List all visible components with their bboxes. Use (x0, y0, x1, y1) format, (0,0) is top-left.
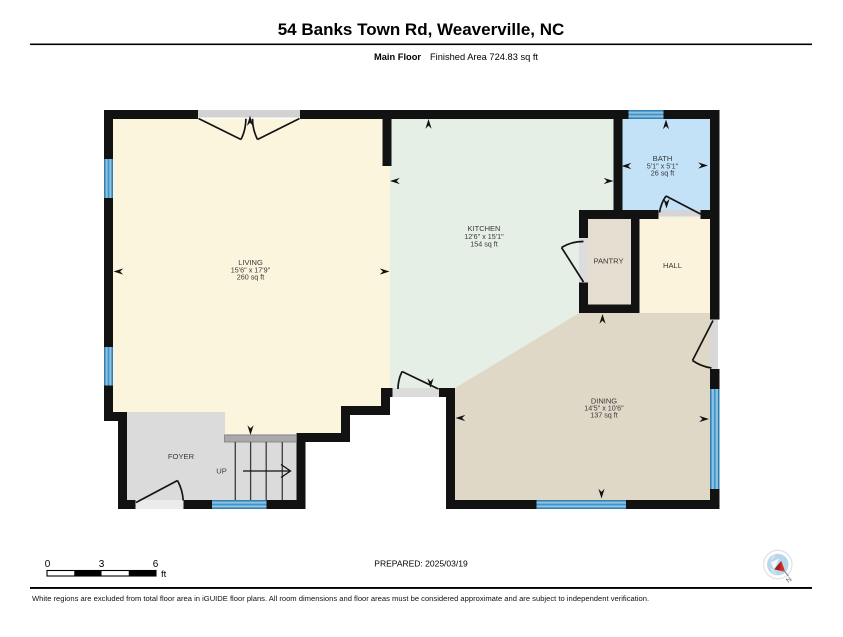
svg-text:54 Banks Town Rd, Weaverville,: 54 Banks Town Rd, Weaverville, NC (278, 20, 565, 39)
svg-text:6: 6 (153, 559, 159, 570)
svg-text:26 sq ft: 26 sq ft (651, 169, 675, 178)
svg-text:White regions are excluded fro: White regions are excluded from total fl… (32, 594, 649, 603)
svg-text:260 sq ft: 260 sq ft (237, 273, 265, 282)
svg-text:ft: ft (161, 569, 167, 580)
svg-text:3: 3 (99, 559, 105, 570)
svg-text:PREPARED: 2025/03/19: PREPARED: 2025/03/19 (374, 559, 468, 569)
svg-text:HALL: HALL (663, 261, 682, 270)
svg-text:Finished Area 724.83 sq ft: Finished Area 724.83 sq ft (430, 52, 538, 62)
svg-text:PANTRY: PANTRY (593, 257, 623, 266)
svg-text:154 sq ft: 154 sq ft (470, 239, 498, 248)
svg-text:0: 0 (45, 559, 51, 570)
svg-text:UP: UP (216, 467, 227, 476)
svg-text:FOYER: FOYER (168, 452, 195, 461)
svg-text:137 sq ft: 137 sq ft (590, 410, 618, 419)
svg-text:Main Floor: Main Floor (374, 52, 421, 62)
